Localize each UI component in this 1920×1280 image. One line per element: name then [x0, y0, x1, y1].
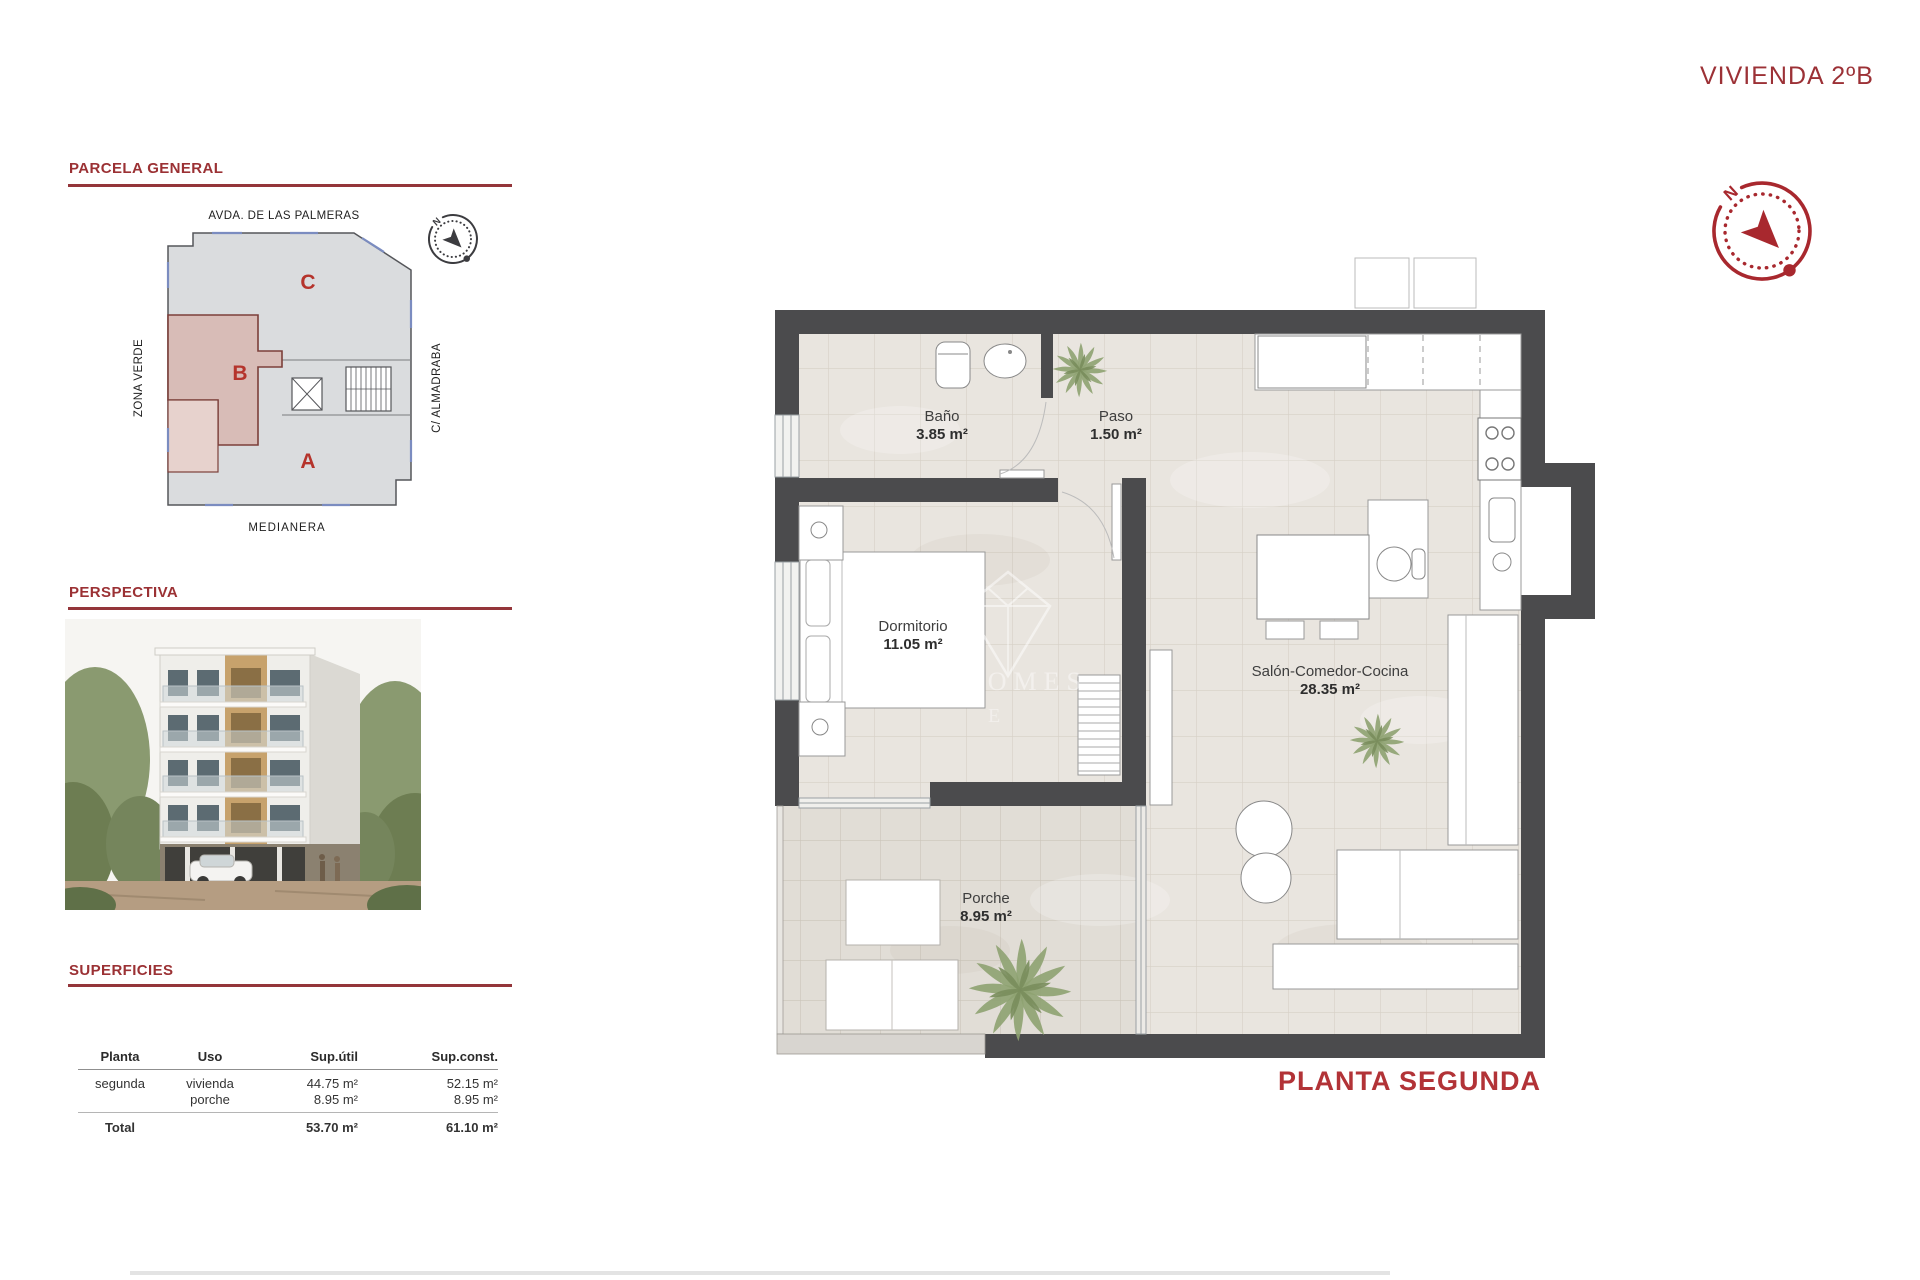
street-label-right: C/ ALMADRABA	[431, 343, 443, 433]
cell-planta: segunda	[78, 1070, 162, 1113]
rule-perspectiva	[68, 607, 512, 610]
floor-plan-drawing: HOMES E	[770, 250, 1600, 1080]
cell-total-util: 53.70 m²	[258, 1113, 358, 1135]
plot-label-b: B	[232, 362, 247, 386]
plan-sheet: { "title": "VIVIENDA 2ºB", "caption": "P…	[0, 0, 1920, 1280]
superficies-table: Planta Uso Sup.útil Sup.const. segunda v…	[78, 1046, 498, 1135]
street-label-top: AVDA. DE LAS PALMERAS	[208, 210, 359, 222]
plot-label-a: A	[300, 450, 315, 474]
col-header-uso: Uso	[162, 1046, 258, 1070]
svg-text:E: E	[988, 705, 1000, 727]
cell-uso: vivienda porche	[162, 1070, 258, 1113]
section-heading-superficies: SUPERFICIES	[69, 962, 173, 979]
cell-total-label: Total	[78, 1113, 162, 1135]
room-label-salon: Salón-Comedor-Cocina 28.35 m²	[1252, 663, 1409, 699]
rule-parcela	[68, 184, 512, 187]
col-header-sup-util: Sup.útil	[258, 1046, 358, 1070]
rule-superficies	[68, 984, 512, 987]
cell-total-const: 61.10 m²	[358, 1113, 498, 1135]
col-header-sup-const: Sup.const.	[358, 1046, 498, 1070]
room-label-porche: Porche 8.95 m²	[960, 890, 1012, 926]
room-label-bano: Baño 3.85 m²	[916, 408, 968, 444]
cell-sup-util: 44.75 m² 8.95 m²	[258, 1070, 358, 1113]
section-heading-perspectiva: PERSPECTIVA	[69, 584, 178, 601]
room-label-dormitorio: Dormitorio 11.05 m²	[878, 618, 947, 654]
plan-caption: PLANTA SEGUNDA	[1278, 1066, 1541, 1097]
compass-rose-icon: N	[1712, 181, 1812, 281]
section-heading-parcela: PARCELA GENERAL	[69, 160, 223, 177]
street-label-left: ZONA VERDE	[133, 339, 145, 417]
room-label-paso: Paso 1.50 m²	[1090, 408, 1142, 444]
building-render	[65, 619, 421, 910]
footer-line	[130, 1271, 1390, 1275]
watermark-text: HOMES	[962, 667, 1088, 696]
col-header-planta: Planta	[78, 1046, 162, 1070]
cell-sup-const: 52.15 m² 8.95 m²	[358, 1070, 498, 1113]
plot-label-c: C	[300, 271, 315, 295]
site-compass-icon: N	[428, 214, 478, 264]
compass-north-label: N	[1720, 182, 1742, 204]
page-title: VIVIENDA 2ºB	[1700, 62, 1858, 91]
street-label-bottom: MEDIANERA	[248, 522, 325, 534]
